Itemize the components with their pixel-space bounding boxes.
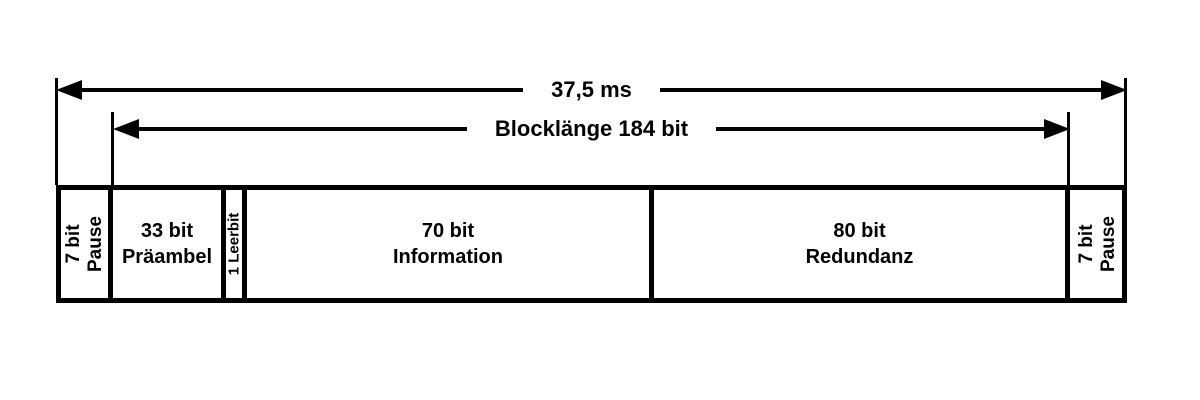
- segment-label-line: 33 bit: [122, 218, 212, 244]
- segment-label-line: 7 bit: [63, 216, 85, 272]
- segment-label-line: 70 bit: [393, 218, 503, 244]
- segment-label-line: Redundanz: [806, 244, 914, 270]
- segment-pause-right-label: 7 bit Pause: [1076, 216, 1120, 272]
- dimension-line: [82, 88, 523, 92]
- segment-label-line: Information: [393, 244, 503, 270]
- segment-pause-left: 7 bit Pause: [61, 190, 113, 298]
- segment-leerbit: 1 Leerbit: [226, 190, 247, 298]
- dimension-arrow-block-length: Blocklänge 184 bit: [113, 119, 1070, 139]
- arrowhead-left-icon: [113, 119, 139, 139]
- arrowhead-left-icon: [56, 80, 82, 100]
- segment-praeambel: 33 bit Präambel: [113, 190, 226, 298]
- segment-information: 70 bit Information: [247, 190, 654, 298]
- tick-line-block-end: [1067, 112, 1070, 185]
- dimension-arrow-total-duration: 37,5 ms: [56, 80, 1127, 100]
- segment-label-line: Pause: [1098, 216, 1120, 272]
- segment-redundanz: 80 bit Redundanz: [654, 190, 1070, 298]
- dimension-line: [660, 88, 1101, 92]
- tick-line-block-start: [111, 112, 114, 185]
- segment-redundanz-label: 80 bit Redundanz: [806, 218, 914, 270]
- segment-label-line: 7 bit: [1076, 216, 1098, 272]
- frame-bar: 7 bit Pause 33 bit Präambel 1 Leerbit 70…: [56, 185, 1127, 303]
- total-duration-label: 37,5 ms: [523, 80, 660, 100]
- segment-praeambel-label: 33 bit Präambel: [122, 218, 212, 270]
- segment-label-line: 80 bit: [806, 218, 914, 244]
- segment-label-line: Pause: [85, 216, 107, 272]
- segment-leerbit-label: 1 Leerbit: [226, 213, 242, 276]
- tick-line-frame-start: [55, 78, 58, 185]
- segment-pause-left-label: 7 bit Pause: [63, 216, 107, 272]
- dimension-line: [716, 127, 1044, 131]
- tick-line-frame-end: [1124, 78, 1127, 185]
- block-length-label: Blocklänge 184 bit: [467, 119, 716, 139]
- segment-label-line: Präambel: [122, 244, 212, 270]
- frame-structure-diagram: 37,5 ms Blocklänge 184 bit 7 bit Pause 3…: [0, 0, 1200, 400]
- segment-pause-right: 7 bit Pause: [1070, 190, 1126, 298]
- dimension-line: [139, 127, 467, 131]
- segment-information-label: 70 bit Information: [393, 218, 503, 270]
